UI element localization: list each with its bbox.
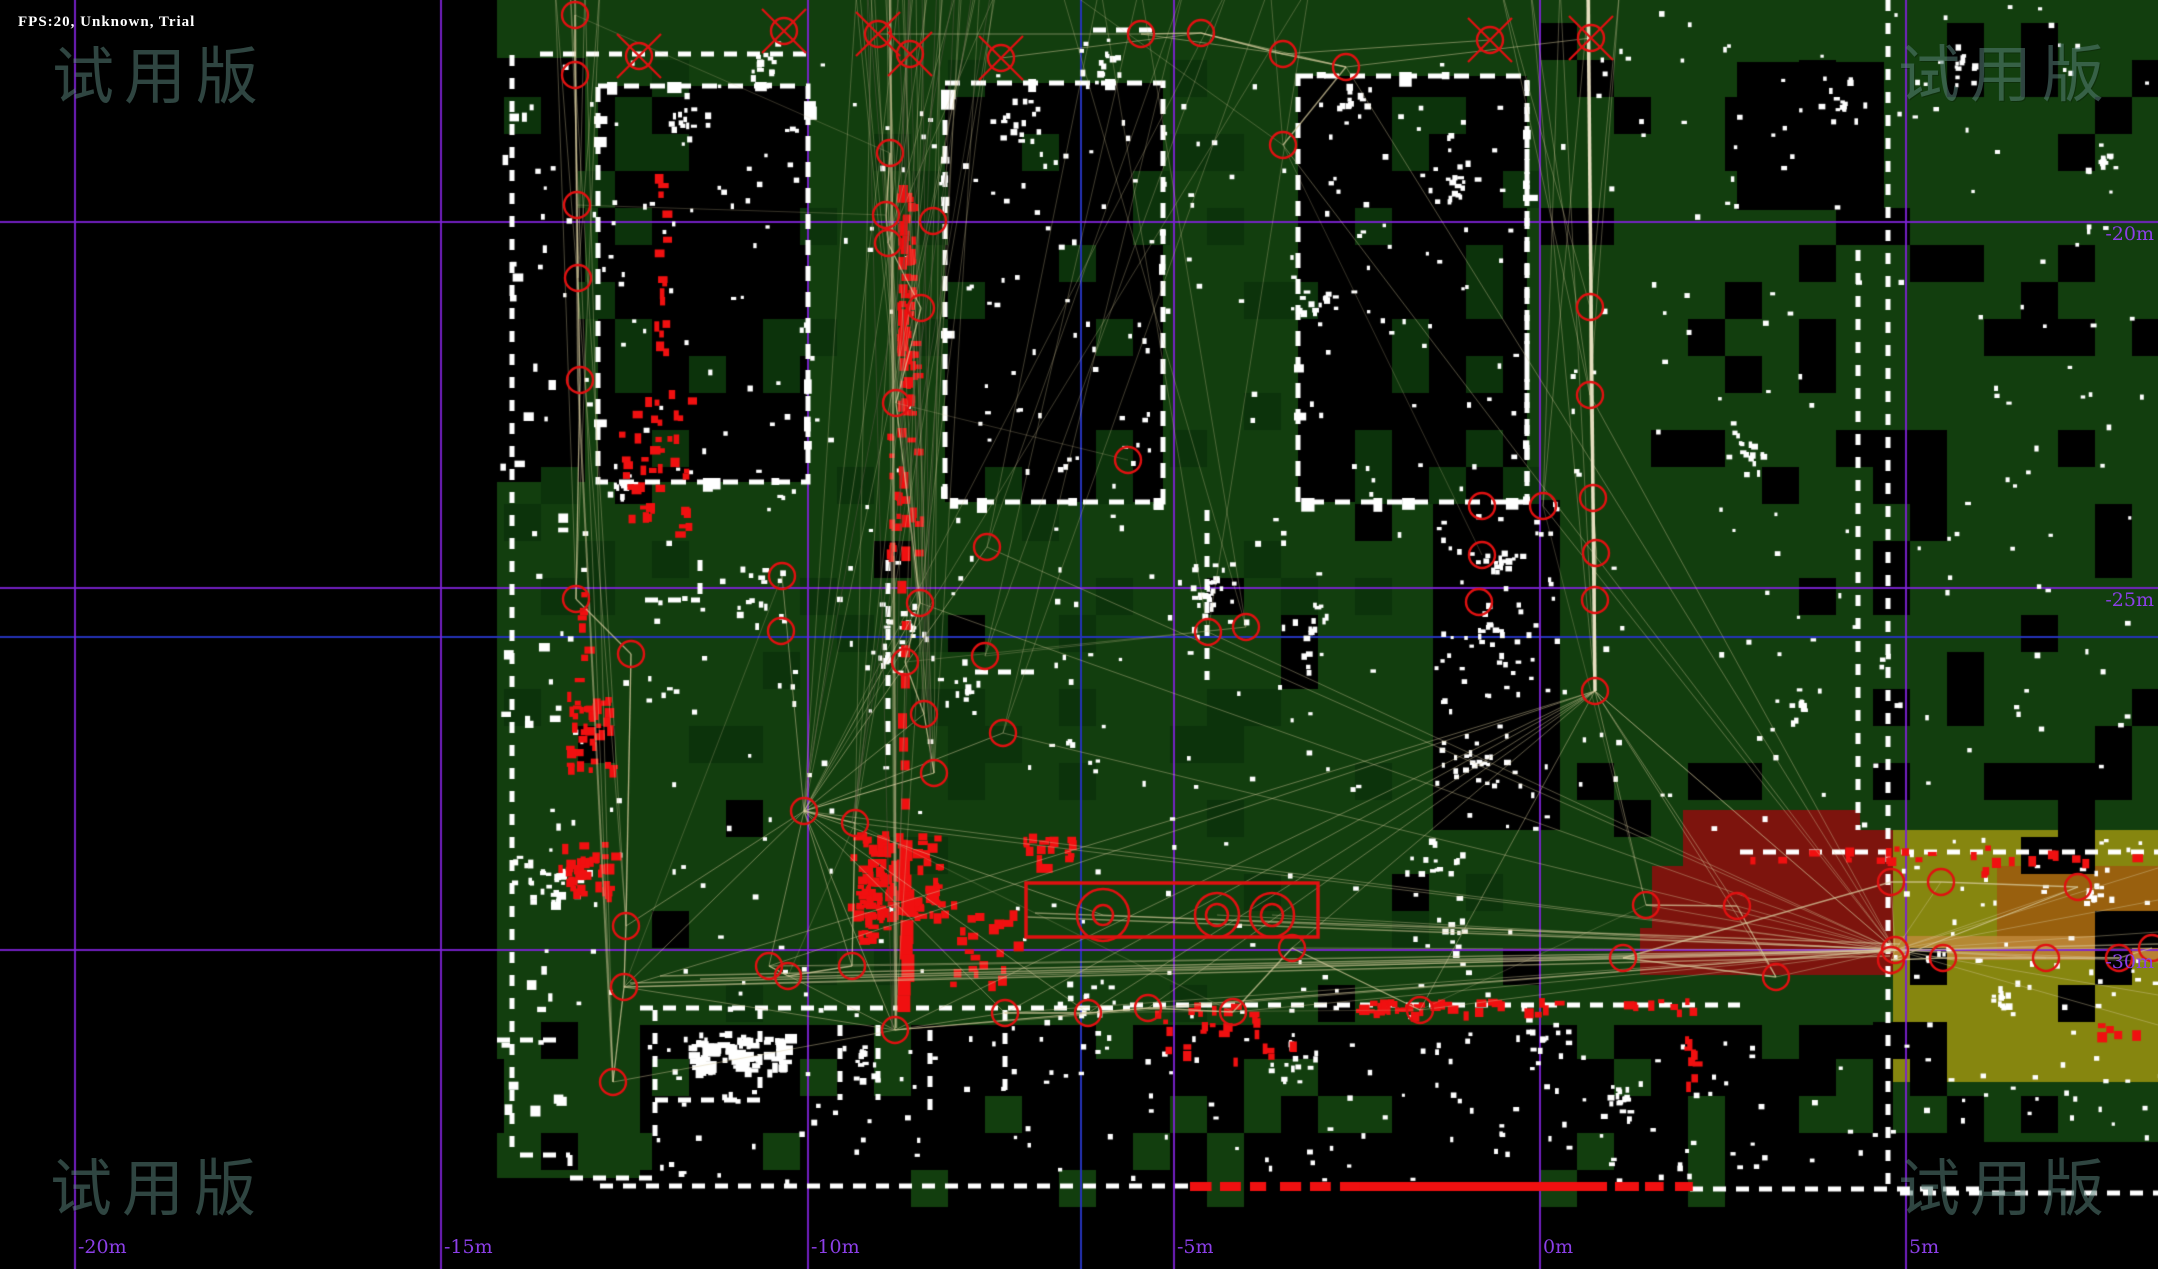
axis-label-y: -20m — [2105, 223, 2154, 245]
map-viewport[interactable] — [0, 0, 2158, 1269]
slam-viewer-window: FPS:20, Unknown, Trial 试用版 试用版 试用版 试用版 -… — [0, 0, 2158, 1269]
trial-watermark-top-right: 试用版 — [1898, 24, 2114, 114]
trial-watermark-bottom-left: 试用版 — [50, 1138, 266, 1228]
axis-label-y: -25m — [2105, 589, 2154, 611]
axis-label-y: -30m — [2105, 951, 2154, 973]
trial-watermark-bottom-right: 试用版 — [1898, 1138, 2114, 1228]
status-bar: FPS:20, Unknown, Trial — [18, 14, 195, 31]
axis-label-x: 0m — [1543, 1236, 1573, 1258]
axis-label-x: -20m — [78, 1236, 127, 1258]
axis-label-x: 5m — [1909, 1236, 1939, 1258]
axis-label-x: -15m — [444, 1236, 493, 1258]
axis-label-x: -10m — [811, 1236, 860, 1258]
axis-label-x: -5m — [1177, 1236, 1214, 1258]
trial-watermark-top-left: 试用版 — [52, 26, 268, 116]
